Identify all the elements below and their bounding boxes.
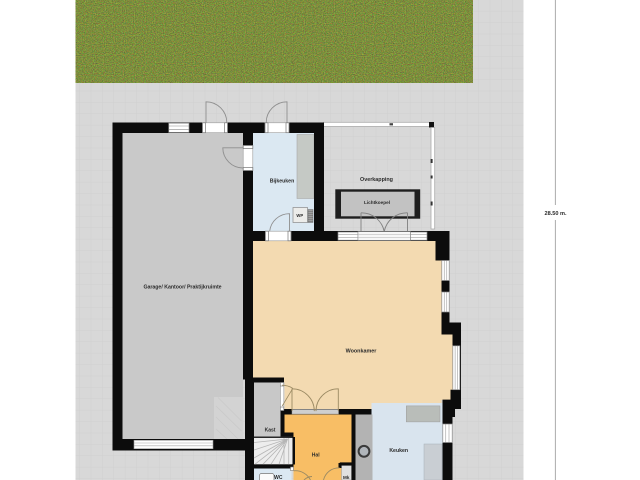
svg-text:Mk: Mk [343,475,350,480]
svg-text:Overkapping: Overkapping [360,177,393,183]
svg-text:WC: WC [274,475,283,480]
svg-text:Hal: Hal [312,453,320,459]
svg-text:28.50 m.: 28.50 m. [544,211,567,217]
svg-text:Keuken: Keuken [389,448,408,454]
svg-text:Kast: Kast [265,428,276,434]
svg-text:Woonkamer: Woonkamer [346,348,378,354]
svg-text:WP: WP [296,213,303,218]
svg-text:Garage/ Kantoor/ Praktijkruimt: Garage/ Kantoor/ Praktijkruimte [143,284,221,290]
svg-text:Lichtkoepel: Lichtkoepel [364,200,390,205]
svg-text:Bijkeuken: Bijkeuken [270,179,295,185]
